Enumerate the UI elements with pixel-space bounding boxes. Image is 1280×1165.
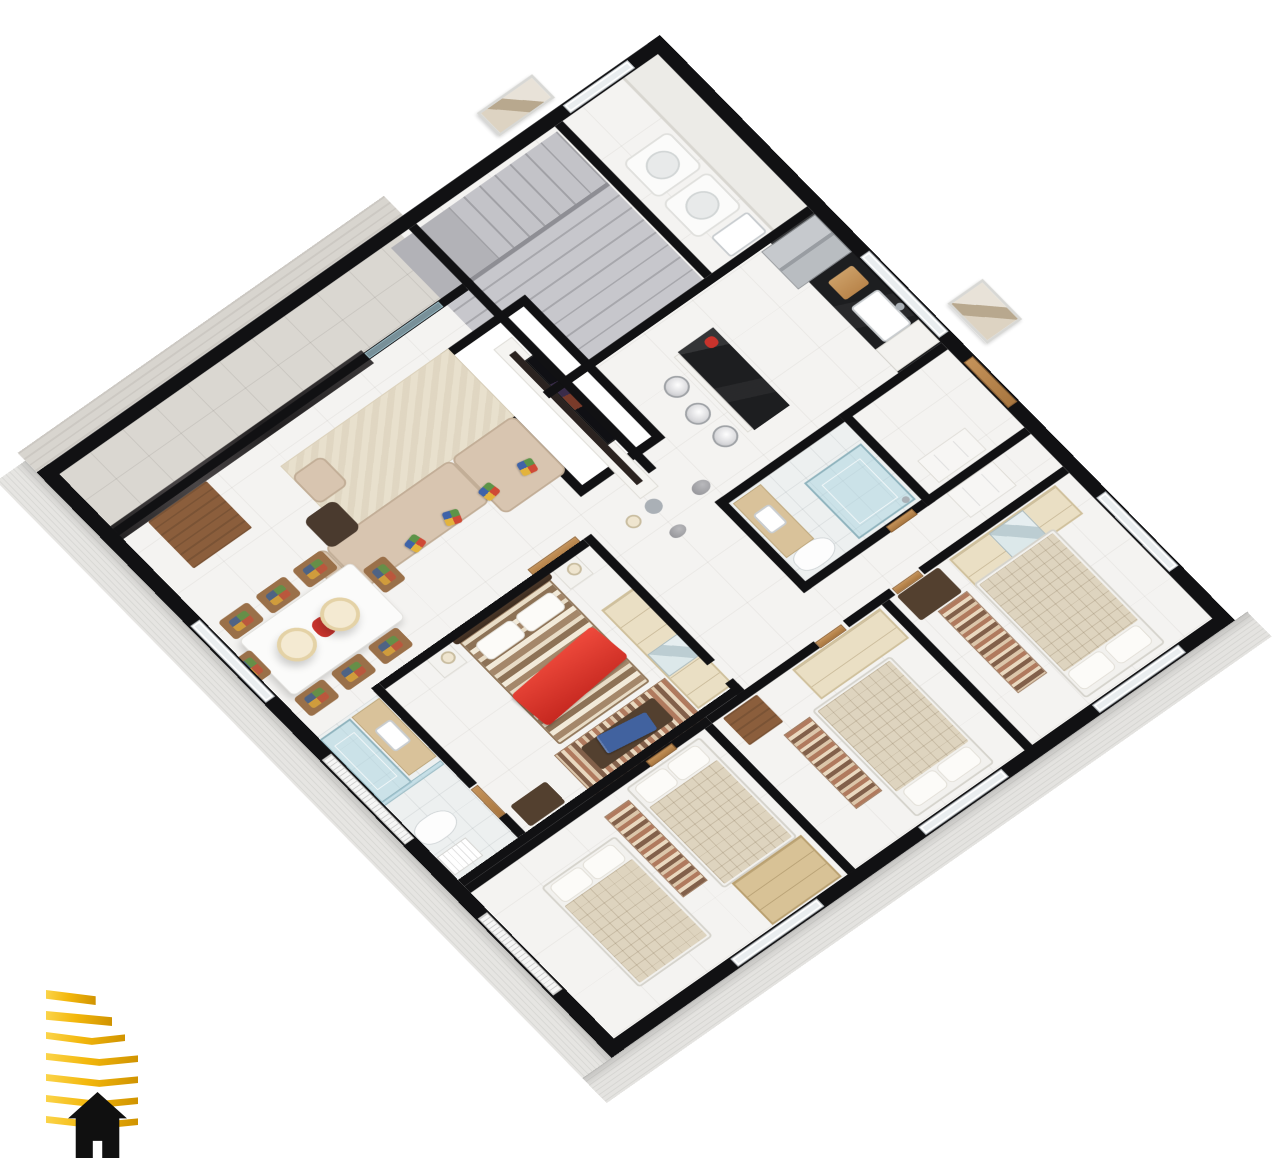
floating-door-panel-ne xyxy=(947,279,1022,344)
logo-chevron-bar-2 xyxy=(46,1011,112,1026)
logo-chevron-bar-5 xyxy=(46,1074,138,1089)
render-canvas xyxy=(0,0,1280,1165)
logo-chevron-bar-1 xyxy=(46,990,96,1005)
logo-chevron-bar-4 xyxy=(46,1053,138,1068)
floor-plan-scene xyxy=(37,35,1235,1058)
gold-house-logo xyxy=(46,990,138,1158)
logo-chevron-bar-3 xyxy=(46,1032,125,1047)
